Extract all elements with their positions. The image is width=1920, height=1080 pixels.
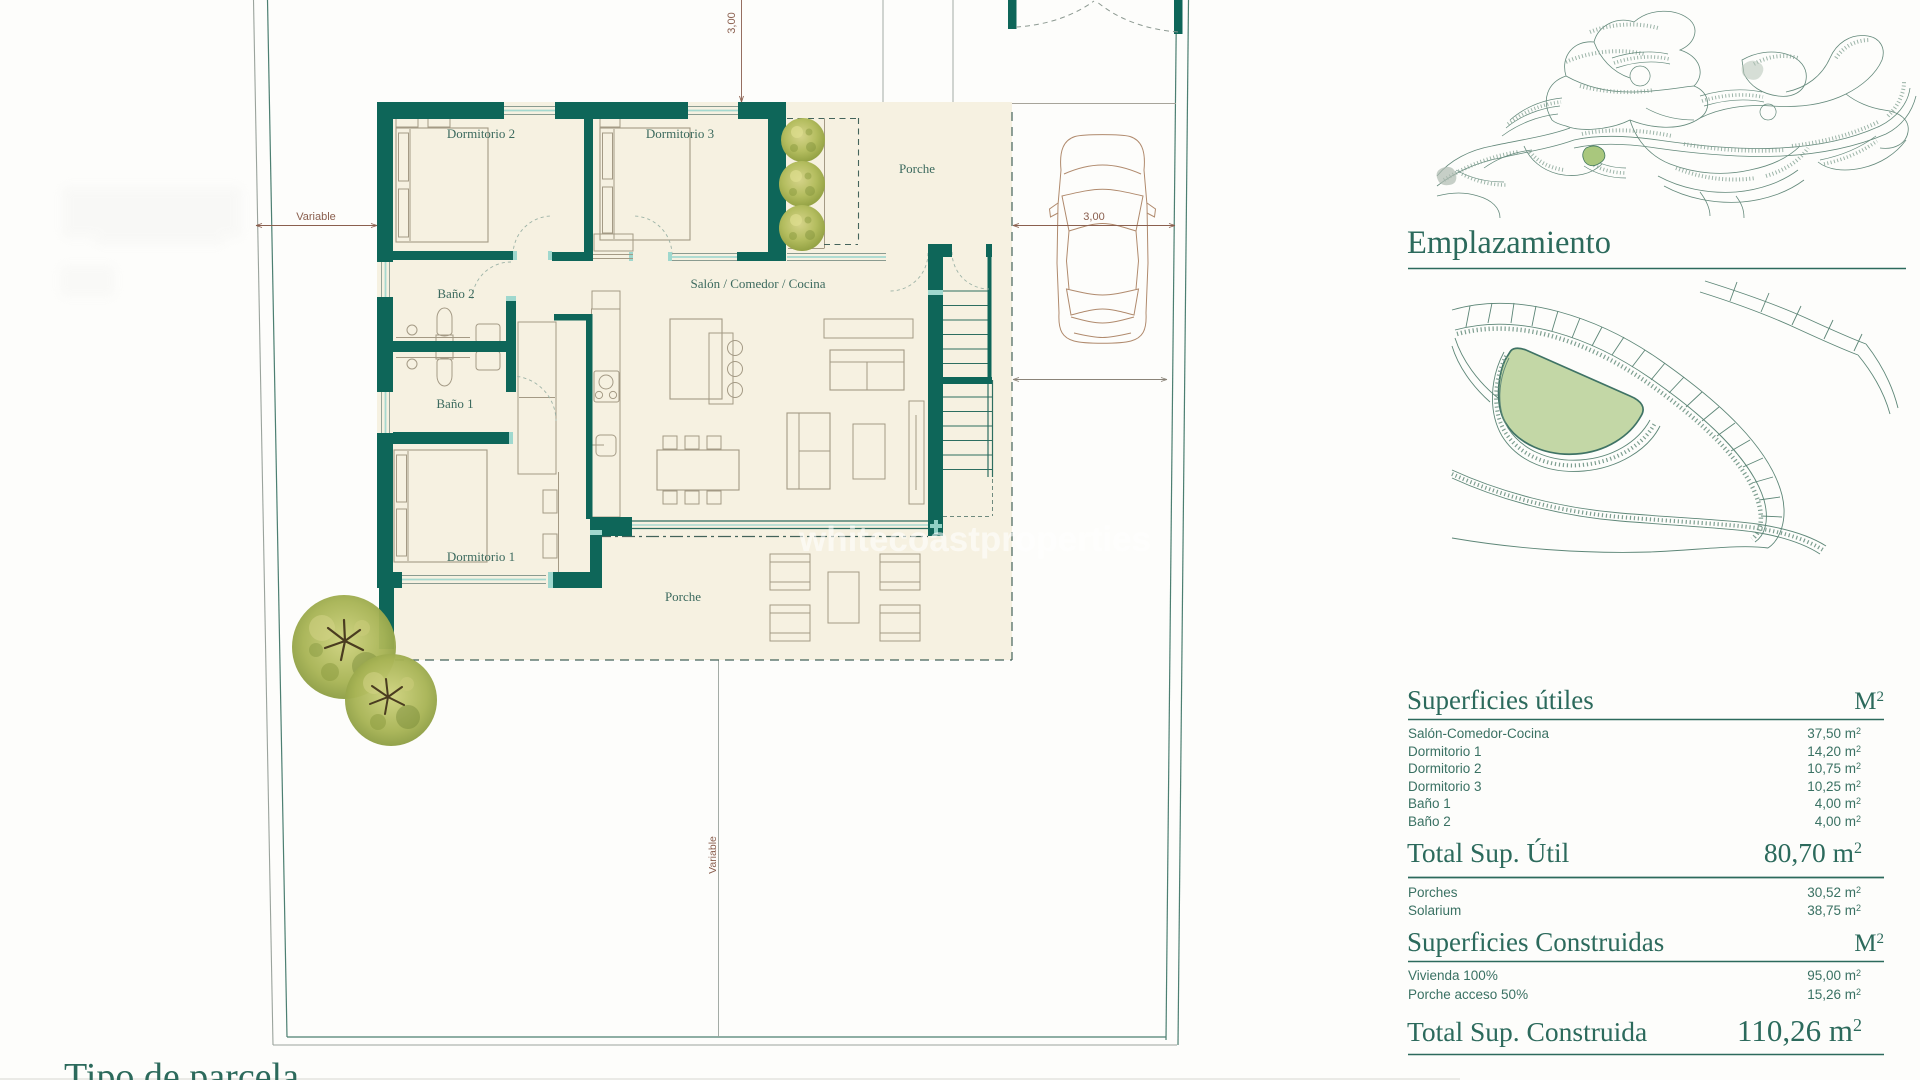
- svg-text:Salón-Comedor-Cocina: Salón-Comedor-Cocina: [1408, 726, 1550, 741]
- svg-text:3,00: 3,00: [1083, 211, 1104, 223]
- svg-text:Emplazamiento: Emplazamiento: [1407, 225, 1611, 261]
- svg-text:Porche: Porche: [665, 589, 701, 604]
- svg-text:15,26 m2: 15,26 m2: [1807, 987, 1861, 1002]
- svg-text:10,25 m2: 10,25 m2: [1807, 779, 1861, 794]
- svg-text:95,00 m2: 95,00 m2: [1807, 968, 1861, 983]
- svg-text:Superficies útiles: Superficies útiles: [1407, 685, 1594, 715]
- svg-text:Dormitorio 2: Dormitorio 2: [1408, 761, 1482, 776]
- svg-text:Dormitorio 3: Dormitorio 3: [646, 126, 714, 141]
- svg-text:Porches: Porches: [1408, 885, 1458, 900]
- svg-text:Porche acceso 50%: Porche acceso 50%: [1408, 987, 1528, 1002]
- svg-text:4,00 m2: 4,00 m2: [1815, 796, 1861, 811]
- svg-text:Dormitorio 2: Dormitorio 2: [447, 126, 515, 141]
- svg-text:Total Sup. Construida: Total Sup. Construida: [1407, 1016, 1647, 1047]
- svg-text:Salón / Comedor / Cocina: Salón / Comedor / Cocina: [690, 276, 825, 291]
- svg-text:M2: M2: [1854, 930, 1884, 957]
- svg-text:14,20 m2: 14,20 m2: [1807, 744, 1861, 759]
- svg-text:80,70 m2: 80,70 m2: [1764, 837, 1862, 868]
- svg-text:110,26 m2: 110,26 m2: [1737, 1013, 1862, 1048]
- svg-text:Superficies Construidas: Superficies Construidas: [1407, 927, 1664, 957]
- svg-text:37,50 m2: 37,50 m2: [1807, 726, 1861, 741]
- svg-text:Variable: Variable: [296, 211, 336, 223]
- svg-text:Baño 2: Baño 2: [1408, 814, 1451, 829]
- svg-text:Vivienda 100%: Vivienda 100%: [1408, 968, 1498, 983]
- svg-text:whitecoastproperties: whitecoastproperties: [798, 520, 1151, 559]
- svg-text:Baño 1: Baño 1: [436, 396, 473, 411]
- svg-text:10,75 m2: 10,75 m2: [1807, 761, 1861, 776]
- svg-text:Tipo de parcela: Tipo de parcela: [64, 1056, 299, 1080]
- svg-text:M2: M2: [1854, 688, 1884, 715]
- svg-text:Dormitorio 1: Dormitorio 1: [447, 549, 515, 564]
- svg-text:38,75 m2: 38,75 m2: [1807, 903, 1861, 918]
- svg-text:30,52 m2: 30,52 m2: [1807, 885, 1861, 900]
- svg-text:Solarium: Solarium: [1408, 903, 1461, 918]
- svg-text:Variable: Variable: [707, 836, 719, 874]
- svg-text:4,00 m2: 4,00 m2: [1815, 814, 1861, 829]
- svg-text:Total Sup. Útil: Total Sup. Útil: [1407, 837, 1570, 868]
- svg-text:Baño 1: Baño 1: [1408, 796, 1451, 811]
- svg-text:3,00: 3,00: [726, 12, 738, 33]
- svg-text:Dormitorio 1: Dormitorio 1: [1408, 744, 1482, 759]
- svg-text:Baño 2: Baño 2: [437, 286, 474, 301]
- svg-text:Porche: Porche: [899, 161, 935, 176]
- svg-text:Dormitorio 3: Dormitorio 3: [1408, 779, 1482, 794]
